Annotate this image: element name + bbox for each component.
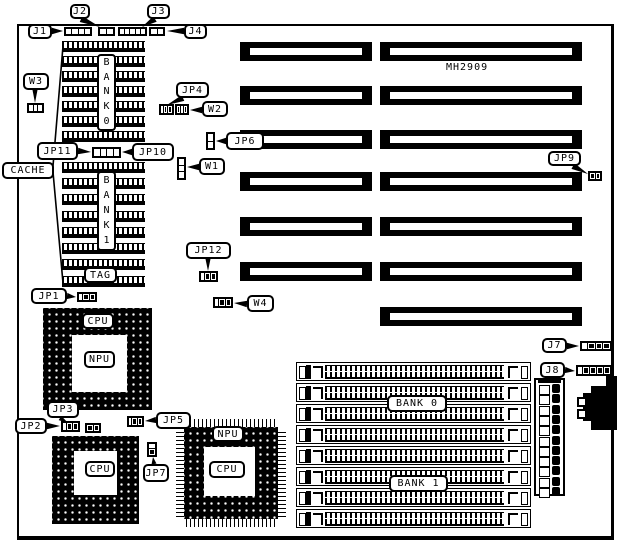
- w4-jumper: [213, 297, 233, 308]
- jumper-pin: [164, 106, 168, 113]
- jumper-pin: [83, 294, 88, 300]
- simm-rclip: [508, 429, 518, 441]
- jumper-pin: [132, 418, 136, 425]
- label-w3: W3: [23, 73, 49, 90]
- power-pin-socket: [539, 467, 550, 477]
- label-jp12: JP12: [186, 242, 231, 259]
- power-pin-socket: [539, 426, 550, 436]
- w3-jumper: [27, 103, 44, 113]
- keyboard-connector-step: [606, 376, 617, 386]
- simm-rsq: [521, 429, 528, 442]
- jumper-pin: [72, 29, 77, 34]
- dip-chip-row: [62, 41, 145, 52]
- power-pin-socket: [539, 416, 550, 426]
- simm-lsq: [299, 366, 306, 379]
- power-pin: [552, 415, 560, 424]
- jp5-jumper: [127, 416, 144, 427]
- jumper-pin: [63, 423, 66, 430]
- label-npu-qfp: NPU: [212, 426, 244, 442]
- simm-band: [325, 449, 504, 463]
- keyboard-connector-notch: [577, 397, 587, 407]
- power-pin: [552, 487, 560, 496]
- jumper-pin: [208, 142, 213, 149]
- isa-slot-stripe: [250, 178, 362, 185]
- jumper-pin: [578, 367, 582, 374]
- isa-slot-stripe: [390, 313, 572, 320]
- isa-slot-stripe: [390, 223, 572, 230]
- label-jp11: JP11: [37, 142, 78, 160]
- jumper-pin: [120, 29, 124, 34]
- power-pin: [552, 446, 560, 455]
- power-pin: [552, 425, 560, 434]
- isa-slot-stripe: [250, 48, 362, 55]
- jumper-pin: [211, 273, 216, 280]
- isa-slot: [380, 307, 582, 326]
- label-jp5: JP5: [156, 412, 191, 429]
- power-pin: [552, 405, 560, 414]
- isa-slot-stripe: [390, 178, 572, 185]
- label-w2: W2: [202, 101, 228, 117]
- jumper-pin: [208, 134, 213, 141]
- isa-slot-stripe: [390, 268, 572, 275]
- isa-slot: [380, 86, 582, 105]
- power-pin-socket: [539, 406, 550, 416]
- label-j3: J3: [147, 4, 170, 19]
- jumper-pin: [73, 423, 78, 430]
- jumper-pin: [181, 106, 184, 113]
- simm-lsq: [299, 387, 306, 400]
- simm-socket: [296, 362, 531, 381]
- jp6-jumper: [206, 132, 215, 150]
- simm-rclip: [508, 450, 518, 462]
- jumper-pin: [201, 273, 204, 280]
- label-cpu-socket1: CPU: [82, 313, 114, 329]
- simm-rclip: [508, 513, 518, 525]
- label-j7: J7: [542, 338, 567, 353]
- jumper-pin: [177, 106, 180, 113]
- jumper-pin: [151, 29, 157, 34]
- isa-slot: [240, 172, 372, 191]
- simm-band: [325, 512, 504, 526]
- jumper-pin: [136, 29, 140, 34]
- isa-slot: [380, 262, 582, 281]
- jp3-jumper: [85, 423, 101, 433]
- jp12-jumper: [199, 271, 218, 282]
- jumper-pin: [179, 166, 184, 172]
- power-pin-socket: [539, 457, 550, 467]
- jumper-pin: [66, 29, 71, 34]
- jp7-jumper: [147, 442, 157, 457]
- simm-lsq: [299, 513, 306, 526]
- isa-slot-stripe: [250, 136, 362, 143]
- simm-lsq: [299, 492, 306, 505]
- simm-rsq: [521, 513, 528, 526]
- w2-jumper: [175, 104, 189, 115]
- isa-slot-stripe: [390, 92, 572, 99]
- label-bank0-simm: BANK 0: [387, 395, 447, 412]
- jumper-pin: [85, 29, 90, 34]
- label-jp4: JP4: [176, 82, 209, 98]
- j3-conn: [118, 27, 147, 36]
- jumper-pin: [141, 29, 145, 34]
- power-pin: [552, 456, 560, 465]
- power-pin: [552, 436, 560, 445]
- jumper-pin: [590, 367, 596, 374]
- jumper-pin: [596, 173, 601, 179]
- isa-slot: [380, 172, 582, 191]
- simm-band: [325, 491, 504, 505]
- simm-rclip: [508, 492, 518, 504]
- j7-jumper: [580, 341, 612, 351]
- jumper-pin: [79, 294, 82, 300]
- jumper-pin: [107, 149, 113, 156]
- simm-rclip: [508, 408, 518, 420]
- label-jp7: JP7: [143, 464, 169, 482]
- power-pin: [552, 466, 560, 475]
- simm-lbar: [306, 491, 311, 505]
- isa-slot: [380, 42, 582, 61]
- j8-jumper: [576, 365, 612, 376]
- power-pin-socket: [539, 395, 550, 405]
- label-w1: W1: [199, 158, 225, 175]
- label-cpu-qfp: CPU: [209, 461, 245, 478]
- jumper-pin: [130, 29, 134, 34]
- simm-lbar: [306, 428, 311, 442]
- jp9-jumper: [588, 171, 602, 181]
- simm-lclip: [313, 387, 323, 399]
- power-pin-socket: [539, 488, 550, 498]
- jumper-pin: [179, 159, 184, 165]
- vertical-label-char: K: [103, 102, 109, 112]
- simm-rclip: [508, 387, 518, 399]
- jumper-pin: [101, 149, 107, 156]
- jumper-pin: [67, 423, 72, 430]
- label-bank1-simm: BANK 1: [389, 475, 448, 492]
- power-connector: [534, 378, 565, 496]
- keyboard-connector-notch: [577, 409, 587, 419]
- simm-lbar: [306, 449, 311, 463]
- simm-lsq: [299, 408, 306, 421]
- simm-lbar: [306, 365, 311, 379]
- jumper-pin: [114, 149, 120, 156]
- simm-rsq: [521, 387, 528, 400]
- j4-conn: [149, 27, 165, 36]
- jumper-pin: [79, 29, 84, 34]
- isa-slot-stripe: [250, 92, 362, 99]
- jumper-pin: [168, 106, 172, 113]
- simm-lbar: [306, 386, 311, 400]
- jumper-pin: [179, 172, 184, 178]
- label-bank0-dip: BANK0: [97, 54, 116, 131]
- power-pin: [552, 394, 560, 403]
- motherboard-diagram: J1J2J3J4W3JP4W2JP6JP11JP10CACHEW1JP12TAG…: [0, 0, 619, 543]
- simm-lsq: [299, 450, 306, 463]
- jumper-pin: [597, 367, 603, 374]
- jumper-pin: [87, 425, 93, 431]
- jumper-pin: [205, 273, 210, 280]
- simm-lclip: [313, 492, 323, 504]
- vertical-label-char: B: [103, 58, 109, 68]
- jumper-pin: [149, 444, 155, 448]
- isa-slot: [380, 130, 582, 149]
- vertical-label-char: A: [103, 191, 109, 201]
- label-jp6: JP6: [226, 132, 264, 150]
- jumper-pin: [138, 418, 142, 425]
- isa-slot: [240, 42, 372, 61]
- label-jp2: JP2: [15, 418, 47, 434]
- jumper-pin: [149, 449, 155, 455]
- vertical-label-char: 0: [103, 117, 109, 127]
- w1-jumper: [177, 157, 186, 180]
- qfp-leads-bottom: [186, 519, 276, 527]
- label-j2: J2: [70, 4, 90, 19]
- jp2-jumper: [61, 421, 80, 432]
- simm-socket: [296, 509, 531, 528]
- power-pin: [552, 384, 560, 393]
- label-jp9: JP9: [548, 151, 581, 166]
- label-jp10: JP10: [132, 143, 174, 161]
- jumper-pin: [107, 29, 113, 34]
- vertical-label-char: 1: [103, 236, 109, 246]
- isa-slot: [240, 217, 372, 236]
- simm-rsq: [521, 471, 528, 484]
- j2-conn: [98, 27, 115, 36]
- jumper-pin: [90, 294, 95, 300]
- label-cpu-socket2: CPU: [85, 461, 115, 477]
- isa-slot-stripe: [390, 136, 572, 143]
- jumper-pin: [596, 343, 603, 349]
- qfp-leads-left: [176, 429, 184, 517]
- simm-lclip: [313, 450, 323, 462]
- jumper-pin: [129, 418, 131, 425]
- simm-rclip: [508, 471, 518, 483]
- simm-rsq: [521, 450, 528, 463]
- jumper-pin: [226, 299, 231, 306]
- isa-slot-stripe: [390, 48, 572, 55]
- isa-slot: [240, 262, 372, 281]
- simm-lbar: [306, 407, 311, 421]
- simm-rsq: [521, 492, 528, 505]
- j1-conn: [64, 27, 92, 36]
- label-tag: TAG: [84, 267, 117, 283]
- jp1110-jumper: [92, 147, 121, 158]
- isa-slot-stripe: [250, 268, 362, 275]
- label-npu-socket1: NPU: [84, 351, 115, 368]
- jumper-pin: [100, 29, 106, 34]
- jumper-pin: [34, 105, 38, 111]
- label-jp1: JP1: [31, 288, 67, 304]
- jumper-pin: [583, 367, 589, 374]
- simm-lbar: [306, 470, 311, 484]
- board-model-text: MH2909: [446, 62, 488, 73]
- jumper-pin: [215, 299, 218, 306]
- isa-slot: [240, 86, 372, 105]
- label-j1: J1: [28, 24, 52, 39]
- jumper-pin: [582, 343, 587, 349]
- jumper-pin: [94, 425, 100, 431]
- power-pin-socket: [539, 447, 550, 457]
- simm-lsq: [299, 471, 306, 484]
- jp4-jumper: [159, 104, 174, 115]
- simm-lclip: [313, 513, 323, 525]
- label-j8: J8: [540, 362, 565, 378]
- power-pin-socket: [539, 385, 550, 395]
- label-bank1-dip: BANK1: [97, 171, 116, 251]
- simm-rclip: [508, 366, 518, 378]
- jumper-pin: [29, 105, 33, 111]
- label-cache: CACHE: [2, 162, 54, 179]
- label-jp3: JP3: [47, 401, 79, 418]
- simm-rsq: [521, 408, 528, 421]
- simm-socket: [296, 425, 531, 444]
- simm-rsq: [521, 366, 528, 379]
- simm-band: [325, 428, 504, 442]
- label-j4: J4: [184, 24, 207, 39]
- vertical-label-char: N: [103, 206, 109, 216]
- simm-lbar: [306, 512, 311, 526]
- jumper-pin: [158, 29, 164, 34]
- simm-lclip: [313, 471, 323, 483]
- simm-lclip: [313, 366, 323, 378]
- power-pin-socket: [539, 478, 550, 488]
- jumper-pin: [125, 29, 129, 34]
- jumper-pin: [219, 299, 224, 306]
- jumper-pin: [604, 367, 610, 374]
- power-pin: [552, 477, 560, 486]
- jumper-pin: [588, 343, 595, 349]
- simm-lclip: [313, 408, 323, 420]
- jumper-pin: [590, 173, 595, 179]
- power-connector-cap: [538, 378, 561, 383]
- vertical-label-char: A: [103, 73, 109, 83]
- simm-lclip: [313, 429, 323, 441]
- power-pin-socket: [539, 437, 550, 447]
- qfp-leads-right: [278, 429, 286, 517]
- vertical-label-char: K: [103, 221, 109, 231]
- vertical-label-char: B: [103, 176, 109, 186]
- isa-slot-stripe: [250, 223, 362, 230]
- keyboard-connector: [591, 386, 617, 430]
- jumper-pin: [603, 343, 610, 349]
- simm-band: [325, 365, 504, 379]
- jumper-pin: [38, 105, 42, 111]
- jumper-pin: [184, 106, 187, 113]
- dip-chip-row: [62, 131, 145, 142]
- jumper-pin: [94, 149, 100, 156]
- label-w4: W4: [247, 295, 274, 312]
- jumper-pin: [161, 106, 163, 113]
- isa-slot: [380, 217, 582, 236]
- simm-lsq: [299, 429, 306, 442]
- simm-socket: [296, 446, 531, 465]
- jp1-jumper: [77, 292, 97, 302]
- vertical-label-char: N: [103, 87, 109, 97]
